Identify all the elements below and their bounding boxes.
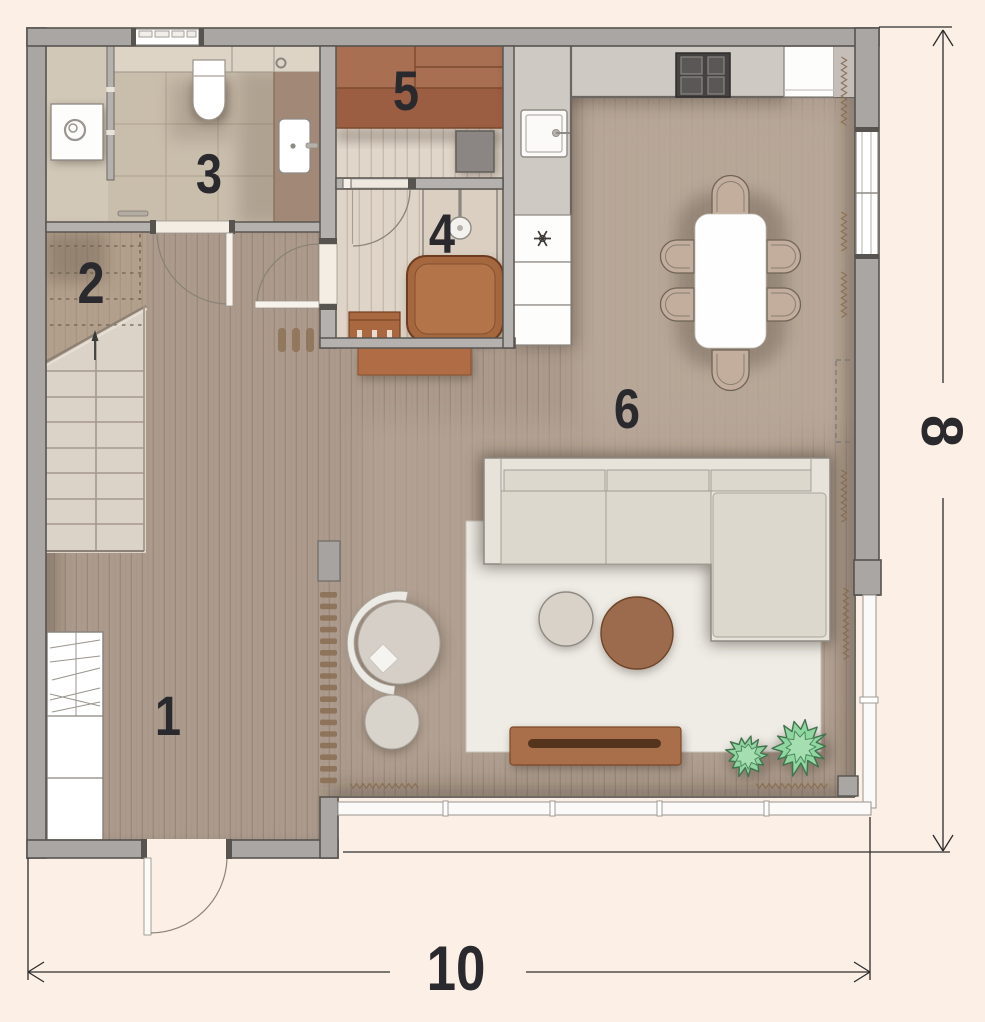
svg-text:6: 6 (614, 377, 640, 440)
svg-text:8: 8 (909, 415, 974, 447)
svg-text:1: 1 (155, 684, 181, 747)
svg-text:10: 10 (427, 934, 486, 1004)
svg-text:4: 4 (429, 202, 455, 265)
svg-text:5: 5 (393, 59, 419, 122)
svg-text:2: 2 (77, 252, 104, 316)
svg-text:3: 3 (196, 142, 222, 205)
